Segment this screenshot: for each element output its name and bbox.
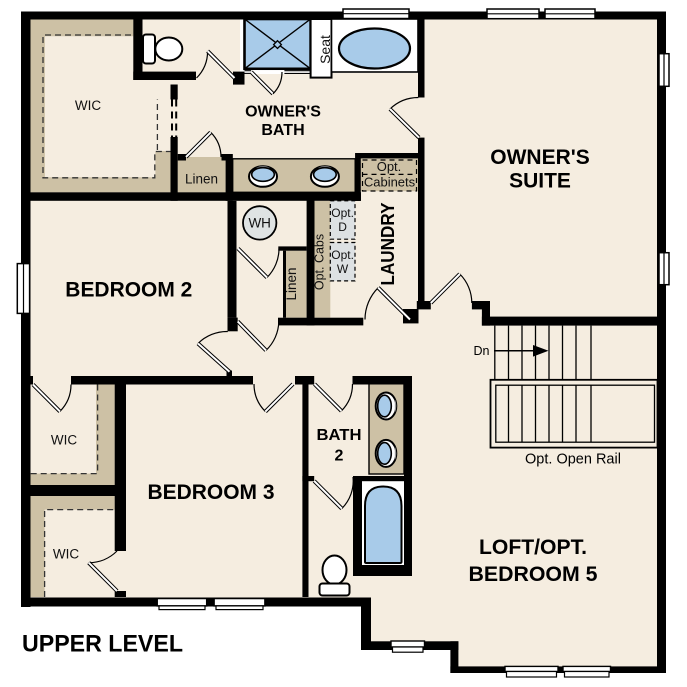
- svg-text:Cabinets: Cabinets: [364, 175, 416, 190]
- svg-text:Linen: Linen: [284, 267, 299, 300]
- svg-text:Opt.: Opt.: [331, 248, 354, 262]
- svg-text:D: D: [338, 220, 347, 234]
- svg-text:WIC: WIC: [75, 98, 101, 113]
- svg-text:OWNER'S: OWNER'S: [490, 146, 590, 169]
- svg-text:WIC: WIC: [53, 547, 79, 562]
- svg-text:BEDROOM 3: BEDROOM 3: [148, 481, 275, 504]
- svg-text:BEDROOM 2: BEDROOM 2: [65, 279, 192, 302]
- svg-text:OWNER'S: OWNER'S: [245, 104, 321, 121]
- svg-text:Opt. Open Rail: Opt. Open Rail: [525, 451, 621, 467]
- svg-text:LAUNDRY: LAUNDRY: [378, 203, 398, 286]
- svg-text:Opt. Cabs: Opt. Cabs: [313, 234, 327, 290]
- svg-text:W: W: [337, 262, 349, 276]
- svg-text:Linen: Linen: [185, 172, 218, 187]
- svg-text:UPPER LEVEL: UPPER LEVEL: [22, 631, 183, 658]
- svg-text:LOFT/OPT.: LOFT/OPT.: [479, 536, 587, 559]
- svg-text:2: 2: [335, 448, 344, 465]
- svg-text:Opt.: Opt.: [331, 206, 354, 220]
- svg-text:BEDROOM 5: BEDROOM 5: [469, 563, 598, 586]
- svg-text:Seat: Seat: [317, 35, 333, 64]
- svg-text:WIC: WIC: [51, 433, 77, 448]
- svg-text:Opt.: Opt.: [377, 159, 402, 174]
- svg-text:WH: WH: [248, 216, 271, 231]
- svg-text:SUITE: SUITE: [509, 170, 571, 193]
- svg-text:Dn: Dn: [474, 344, 490, 358]
- svg-text:BATH: BATH: [317, 427, 362, 444]
- svg-text:BATH: BATH: [261, 122, 304, 139]
